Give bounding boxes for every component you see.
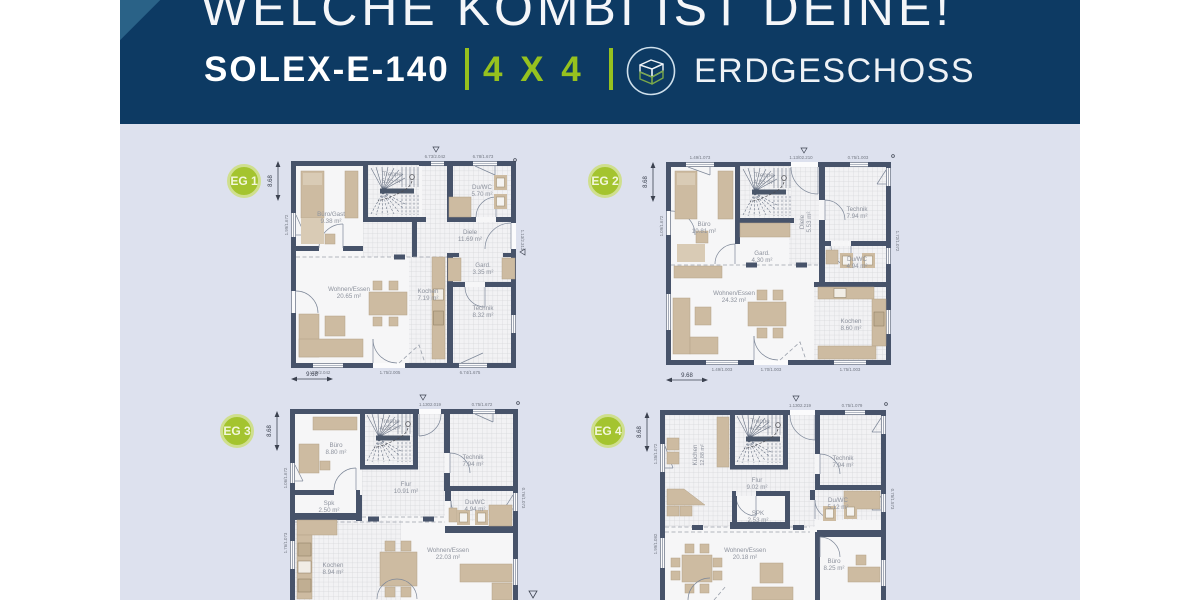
svg-text:8.80 m²: 8.80 m² [326, 449, 347, 456]
svg-text:1.06/1.672: 1.06/1.672 [283, 467, 288, 488]
svg-text:Du/WC: Du/WC [465, 499, 485, 506]
svg-text:2.50 m²: 2.50 m² [319, 507, 340, 514]
svg-text:Diele: Diele [799, 214, 806, 229]
svg-text:6.78/1.673: 6.78/1.673 [473, 154, 494, 159]
svg-text:5.35 m²: 5.35 m² [382, 178, 403, 185]
svg-text:Technik: Technik [463, 454, 485, 461]
svg-text:Treppe: Treppe [382, 171, 402, 178]
svg-text:8.32 m²: 8.32 m² [473, 312, 494, 319]
svg-text:1.35/1.072: 1.35/1.072 [653, 443, 658, 464]
svg-text:Diele: Diele [463, 229, 478, 236]
svg-text:20.18 m²: 20.18 m² [733, 554, 757, 561]
svg-text:1.75/2.005: 1.75/2.005 [380, 370, 401, 375]
svg-text:10.91 m²: 10.91 m² [394, 488, 418, 495]
svg-text:5.70 m²: 5.70 m² [472, 191, 493, 198]
svg-text:Spk: Spk [324, 500, 336, 507]
svg-text:Technik: Technik [473, 305, 495, 312]
svg-text:7.94 m²: 7.94 m² [847, 213, 868, 220]
svg-text:Gard.: Gard. [475, 262, 491, 269]
svg-text:8.60 m²: 8.60 m² [841, 325, 862, 332]
svg-text:1.1302.219: 1.1302.219 [789, 403, 812, 408]
svg-text:1.1302.019: 1.1302.019 [419, 402, 442, 407]
svg-text:4.94 m²: 4.94 m² [847, 263, 868, 270]
svg-text:1.99/1.082: 1.99/1.082 [653, 533, 658, 554]
svg-text:Treppe: Treppe [754, 172, 774, 179]
svg-text:7.19 m²: 7.19 m² [418, 295, 439, 302]
svg-text:11.69 m²: 11.69 m² [458, 236, 482, 243]
svg-text:Wohnen/Essen: Wohnen/Essen [713, 290, 755, 297]
svg-text:8.94 m²: 8.94 m² [323, 569, 344, 576]
svg-text:Flur: Flur [752, 477, 763, 484]
svg-text:0.75/1.079: 0.75/1.079 [842, 403, 863, 408]
svg-text:Du/WC: Du/WC [847, 256, 867, 263]
svg-text:1.09/1.672: 1.09/1.672 [659, 215, 664, 236]
svg-text:Treppe: Treppe [380, 418, 400, 425]
svg-text:9.02 m²: 9.02 m² [747, 484, 768, 491]
svg-text:12.88 m²: 12.88 m² [700, 444, 706, 465]
svg-text:Büro/Gast: Büro/Gast [317, 211, 345, 218]
svg-text:Wohnen/Essen: Wohnen/Essen [427, 547, 469, 554]
svg-text:4.35 m²: 4.35 m² [750, 425, 771, 432]
svg-text:8.68: 8.68 [637, 426, 643, 438]
svg-text:24.32 m²: 24.32 m² [722, 297, 746, 304]
svg-text:Kochen: Kochen [841, 318, 863, 325]
svg-text:3.35 m²: 3.35 m² [473, 269, 494, 276]
svg-text:Wohnen/Essen: Wohnen/Essen [724, 547, 766, 554]
svg-text:Treppe: Treppe [750, 418, 770, 425]
svg-text:0.75/1.672: 0.75/1.672 [472, 402, 493, 407]
svg-text:Büro: Büro [697, 221, 711, 228]
svg-text:1.76/1.073: 1.76/1.073 [283, 532, 288, 553]
svg-text:10.81 m²: 10.81 m² [692, 228, 716, 235]
svg-text:Kochen: Kochen [418, 288, 440, 295]
svg-text:4.30 m²: 4.30 m² [752, 257, 773, 264]
svg-text:5.53 m²: 5.53 m² [806, 212, 813, 233]
svg-text:Wohnen/Essen: Wohnen/Essen [328, 286, 370, 293]
svg-text:8.68: 8.68 [267, 425, 273, 437]
svg-text:1.72/1.072: 1.72/1.072 [895, 231, 900, 252]
svg-text:Kochen: Kochen [323, 562, 345, 569]
svg-text:8.68: 8.68 [268, 175, 274, 187]
svg-text:5.12 m²: 5.12 m² [828, 504, 849, 511]
svg-text:9.38 m²: 9.38 m² [321, 218, 342, 225]
svg-text:9.68: 9.68 [681, 373, 693, 379]
svg-text:SPK: SPK [752, 510, 765, 517]
svg-text:1.49/1.003: 1.49/1.003 [712, 367, 733, 372]
svg-text:Küchen: Küchen [692, 444, 699, 466]
svg-text:4.35 m²: 4.35 m² [754, 179, 775, 186]
svg-text:22.03 m²: 22.03 m² [436, 554, 460, 561]
svg-text:Büro: Büro [329, 442, 343, 449]
svg-text:1.49/1.073: 1.49/1.073 [690, 155, 711, 160]
svg-text:1.13/2.313: 1.13/2.313 [520, 230, 525, 251]
svg-text:0.75/1.573: 0.75/1.573 [890, 489, 895, 510]
svg-text:Flur: Flur [401, 481, 412, 488]
svg-text:4.35 m²: 4.35 m² [380, 425, 401, 432]
svg-text:8.25 m²: 8.25 m² [824, 565, 845, 572]
svg-text:Du/WC: Du/WC [472, 184, 492, 191]
svg-text:Gard.: Gard. [754, 250, 770, 257]
svg-text:1.70/1.003: 1.70/1.003 [761, 367, 782, 372]
svg-text:1.75/1.003: 1.75/1.003 [840, 367, 861, 372]
svg-text:1.13/02.210: 1.13/02.210 [789, 155, 813, 160]
svg-text:0.76/1.073: 0.76/1.073 [521, 488, 526, 509]
svg-text:Technik: Technik [847, 206, 869, 213]
svg-text:Du/WC: Du/WC [828, 497, 848, 504]
svg-text:7.94 m²: 7.94 m² [833, 462, 854, 469]
svg-text:9.68: 9.68 [306, 372, 318, 378]
svg-text:20.65 m²: 20.65 m² [337, 293, 361, 300]
svg-text:7.94 m²: 7.94 m² [463, 461, 484, 468]
svg-text:6.74/1.675: 6.74/1.675 [460, 370, 481, 375]
svg-text:1.99/1.672: 1.99/1.672 [284, 214, 289, 235]
svg-text:2.53 m²: 2.53 m² [748, 517, 769, 524]
svg-text:6.73/2.042: 6.73/2.042 [425, 154, 446, 159]
svg-text:Technik: Technik [833, 455, 855, 462]
svg-text:4.94 m²: 4.94 m² [465, 506, 486, 513]
svg-text:8.68: 8.68 [643, 176, 649, 188]
svg-text:Büro: Büro [827, 558, 841, 565]
svg-text:0.75/1.003: 0.75/1.003 [848, 155, 869, 160]
